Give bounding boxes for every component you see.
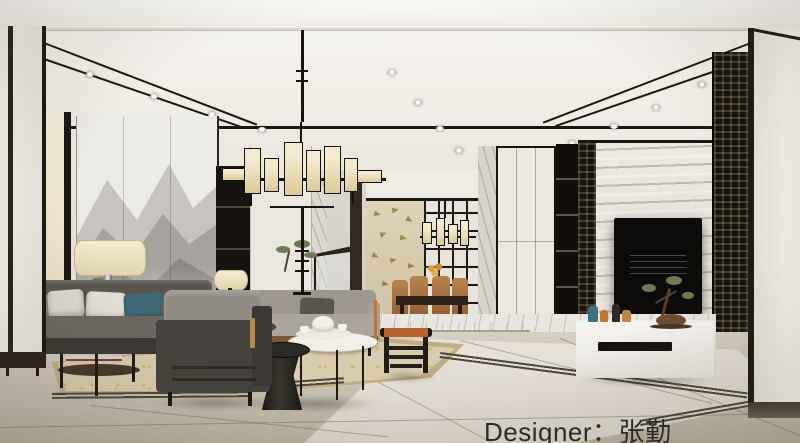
- stool-shadow: [378, 372, 436, 382]
- table-leg: [336, 350, 338, 400]
- chandelier-detail: [295, 250, 309, 252]
- display-niche-column: [556, 144, 578, 330]
- chandelier-detail: [296, 80, 308, 82]
- chandelier-shade: [306, 150, 321, 192]
- dining-chandelier: [444, 200, 446, 218]
- teacup: [300, 326, 309, 333]
- orange-vase: [600, 310, 608, 322]
- dining-table: [396, 296, 468, 305]
- downlight: [414, 100, 422, 105]
- stool-slat: [388, 355, 424, 359]
- lamp-table-shelf: [58, 364, 140, 376]
- downlight: [258, 127, 266, 132]
- pillar-trim: [42, 26, 46, 352]
- teacup: [338, 324, 347, 331]
- armchair-leg: [168, 392, 172, 406]
- pillar-trim: [748, 28, 754, 406]
- butterfly-decor: [381, 280, 389, 287]
- table-lamp-shade: [74, 240, 146, 276]
- foreground-pillar-left: [0, 26, 46, 352]
- dining-chandelier-shade: [460, 220, 469, 246]
- throw-pillow: [47, 289, 85, 319]
- downlight: [150, 94, 158, 99]
- wooden-stool: [380, 328, 432, 337]
- butterfly-decor: [379, 230, 388, 238]
- table-flowers: [426, 262, 444, 278]
- butterfly-decor: [408, 263, 415, 270]
- chandelier-shade: [324, 146, 341, 194]
- dining-soffit: [366, 170, 478, 200]
- dining-chandelier-shade: [436, 218, 445, 246]
- console-groove-handle: [598, 342, 672, 351]
- downlight: [698, 82, 706, 87]
- tv-screen-text: [630, 250, 686, 274]
- dining-chandelier-shade: [448, 224, 458, 244]
- loveseat-wood-trim: [374, 300, 377, 342]
- butterfly-decor: [400, 234, 408, 241]
- teapot: [312, 316, 334, 332]
- blue-vase: [588, 306, 598, 322]
- tv-wall-trim: [578, 140, 714, 143]
- butterfly-decor: [405, 216, 414, 225]
- stool-slat: [386, 346, 426, 350]
- butterfly-decor: [389, 256, 397, 264]
- bonsai-foliage: [682, 292, 694, 299]
- storage-cabinet-white: [496, 146, 556, 324]
- chandelier-shade: [344, 158, 358, 192]
- pillar-baseboard: [0, 352, 46, 368]
- living-room-rendering: Designer：张勤: [0, 0, 800, 443]
- bonsai-foliage: [276, 246, 290, 253]
- downlight: [388, 70, 396, 75]
- bonsai-foliage: [666, 276, 682, 285]
- stool-slat: [390, 364, 422, 368]
- armchair-brass-accent: [250, 318, 255, 348]
- dark-bottle: [612, 304, 620, 322]
- designer-credit: Designer：张勤: [484, 412, 672, 443]
- downlight: [86, 72, 94, 77]
- pillar-baseboard: [748, 402, 800, 418]
- dining-chandelier-shade: [422, 222, 432, 244]
- butterfly-decor: [392, 206, 400, 213]
- chandelier-stem: [301, 30, 304, 122]
- small-vase: [622, 310, 631, 322]
- bonsai-foliage: [304, 252, 317, 258]
- butterfly-decor: [371, 252, 380, 260]
- marble-partition-column: [478, 146, 496, 338]
- ceiling-cornice: [0, 0, 800, 31]
- magazines: [66, 356, 122, 363]
- chandelier-detail: [296, 70, 308, 72]
- chandelier-shade: [244, 148, 261, 194]
- pillar-trim: [8, 26, 13, 352]
- armchair-strap: [172, 378, 256, 381]
- bonsai-foliage: [642, 284, 656, 292]
- downlight: [436, 126, 444, 131]
- armchair-leg: [248, 392, 252, 406]
- chandelier-shade: [264, 158, 279, 192]
- foreground-pillar-right: [754, 28, 800, 406]
- table-leg: [362, 346, 364, 390]
- downlight: [455, 148, 463, 153]
- armchair-side: [252, 306, 272, 386]
- downlight: [610, 124, 618, 129]
- chandelier-detail: [293, 292, 311, 295]
- downlight: [652, 105, 660, 110]
- butterfly-decor: [373, 210, 381, 218]
- chandelier-detail: [295, 270, 309, 272]
- chandelier-detail: [295, 260, 309, 262]
- bonsai-saucer: [650, 324, 692, 329]
- table-lamp-shade: [214, 270, 248, 290]
- armchair-strap: [172, 366, 256, 369]
- chandelier-shade: [284, 142, 303, 196]
